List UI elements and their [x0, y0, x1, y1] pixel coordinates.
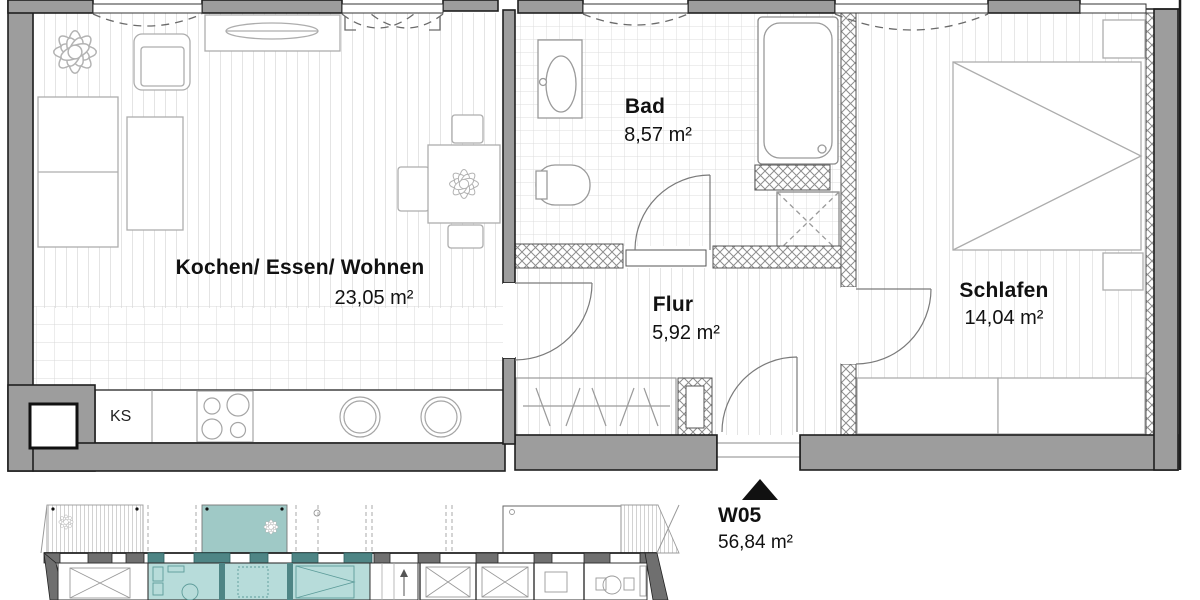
armchair-seat	[141, 47, 184, 86]
sink-basin	[546, 56, 576, 112]
dining-chair-bottom	[448, 225, 483, 248]
plant-icon	[54, 31, 97, 74]
room-area-hall: 5,92 m²	[652, 322, 720, 345]
terrace-right	[621, 505, 679, 553]
dining-chair-top	[452, 115, 483, 143]
kitchen	[95, 390, 505, 443]
bathtub-inner	[764, 23, 832, 158]
room-label-hall: Flur	[653, 293, 693, 317]
dining-chair-left	[398, 167, 429, 211]
floorplan-page: Kochen/ Essen/ Wohnen 23,05 m² Bad 8,57 …	[0, 0, 1200, 600]
pier-1	[8, 0, 93, 13]
sink-tap	[540, 79, 547, 86]
terrace-left	[47, 505, 143, 553]
wall-bottom-hall-left	[515, 435, 717, 470]
unit-area: 56,84 m²	[718, 532, 793, 554]
bathtub-drain	[818, 145, 826, 153]
bedroom-closet-right	[998, 378, 1145, 434]
kitchen-counter	[95, 390, 505, 443]
balcony-right	[503, 506, 621, 553]
wall-bottom-living	[33, 443, 505, 471]
nightstand-bottom	[1103, 253, 1143, 290]
daybed	[127, 117, 183, 230]
minimap-piers-teal	[148, 553, 372, 563]
room-label-living: Kochen/ Essen/ Wohnen	[176, 256, 425, 280]
kitchen-tile-floor	[33, 306, 503, 392]
room-label-bath: Bad	[625, 95, 665, 119]
room-label-bedroom: Schlafen	[959, 279, 1048, 303]
wall-living-bath	[503, 10, 515, 283]
table-plant-icon	[450, 170, 479, 199]
room-area-bedroom: 14,04 m²	[965, 307, 1044, 330]
room-area-bath: 8,57 m²	[624, 124, 692, 147]
pier-6	[988, 0, 1080, 13]
wall-right-neighbour	[1154, 9, 1178, 470]
toilet-tank	[536, 171, 547, 199]
pier-2	[202, 0, 342, 13]
shaft-box	[30, 404, 77, 448]
minimap-unit-w05	[148, 563, 370, 600]
minimap	[41, 505, 679, 600]
bed	[953, 62, 1141, 250]
fridge-label: KS	[110, 408, 131, 426]
pier-3	[443, 0, 498, 11]
pier-5	[688, 0, 835, 13]
bedroom-closet-left	[857, 378, 998, 434]
nightstand-top	[1103, 20, 1145, 58]
wall-bottom-right	[800, 435, 1178, 470]
pier-4	[518, 0, 583, 13]
minimap-right-wall	[645, 553, 668, 600]
unit-code: W05	[718, 504, 761, 528]
entrance-marker	[742, 479, 778, 500]
wall-living-hall	[503, 358, 515, 444]
room-area-living: 23,05 m²	[335, 287, 414, 310]
